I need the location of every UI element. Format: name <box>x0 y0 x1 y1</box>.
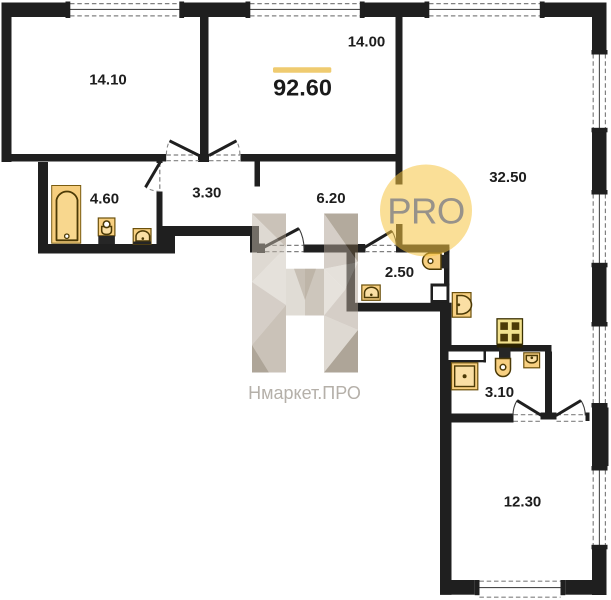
svg-text:12.30: 12.30 <box>504 494 542 511</box>
svg-text:14.00: 14.00 <box>348 34 386 51</box>
svg-text:6.20: 6.20 <box>316 190 345 207</box>
svg-text:3.10: 3.10 <box>485 384 514 401</box>
svg-text:92.60: 92.60 <box>273 75 332 101</box>
svg-text:PRO: PRO <box>387 191 465 232</box>
svg-text:Нмаркет.ПРО: Нмаркет.ПРО <box>248 383 361 403</box>
svg-text:3.30: 3.30 <box>192 184 221 201</box>
svg-text:14.10: 14.10 <box>89 72 127 89</box>
svg-text:32.50: 32.50 <box>489 169 527 186</box>
svg-text:4.60: 4.60 <box>90 191 119 208</box>
svg-text:2.50: 2.50 <box>385 264 414 281</box>
